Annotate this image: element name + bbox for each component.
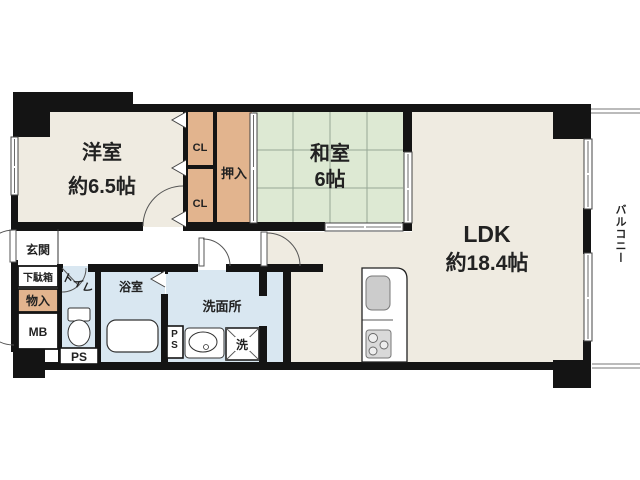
wall-right-mid bbox=[583, 208, 591, 254]
genkan-label: 玄関 bbox=[26, 242, 50, 257]
wall-hall-bottom-c bbox=[226, 264, 323, 272]
wall-tatami-bottom bbox=[250, 222, 325, 231]
closet-upper-fill bbox=[187, 108, 215, 167]
wall-closet-divider bbox=[187, 165, 217, 169]
tatami-room-size: 6帖 bbox=[314, 168, 345, 191]
pipe-space-toilet-label: PS bbox=[71, 350, 87, 364]
ldk-door-leaf bbox=[261, 232, 267, 266]
wall-hall-bottom-b bbox=[88, 264, 198, 272]
meter-box-label: MB bbox=[29, 325, 48, 339]
toilet-tank bbox=[68, 308, 90, 321]
oshiire-label: 押入 bbox=[221, 166, 247, 181]
closet-upper-label: CL bbox=[193, 142, 208, 154]
toilet-bowl bbox=[68, 320, 90, 346]
floorplan-canvas: 洋室 約6.5帖 和室 6帖 LDK 約18.4帖 押入 CL CL 玄関 下駄… bbox=[0, 0, 640, 480]
washstand-basin bbox=[189, 332, 217, 352]
washroom-label: 洗面所 bbox=[202, 299, 241, 314]
wall-top bbox=[50, 104, 557, 112]
balcony-label: バルコニー bbox=[612, 204, 628, 264]
washroom-door-leaf bbox=[199, 238, 204, 266]
ldk-size: 約18.4帖 bbox=[446, 251, 529, 275]
washer-label: 洗 bbox=[236, 337, 248, 352]
pipe-space-washroom-label: PS bbox=[169, 329, 180, 351]
kitchen-sink bbox=[366, 276, 390, 310]
wall-washroom-stub-bottom bbox=[259, 326, 267, 364]
ldk-label: LDK bbox=[463, 221, 511, 247]
bath-label: 浴室 bbox=[119, 279, 143, 294]
wall-left-lower bbox=[11, 260, 18, 352]
storage-label: 物入 bbox=[26, 293, 50, 308]
wall-washroom-stub-top bbox=[259, 270, 267, 296]
wall-pillar-top-right bbox=[553, 104, 591, 139]
western-room-label: 洋室 bbox=[82, 140, 122, 164]
tatami-room-label: 和室 bbox=[310, 141, 350, 165]
wall-washroom-ldk bbox=[283, 264, 291, 368]
closet-lower-label: CL bbox=[193, 198, 208, 210]
shoe-cabinet-label: 下駄箱 bbox=[23, 271, 53, 284]
western-room-size: 約6.5帖 bbox=[68, 174, 136, 198]
floorplan-drawing: 洋室 約6.5帖 和室 6帖 LDK 約18.4帖 押入 CL CL 玄関 下駄… bbox=[0, 0, 640, 480]
wall-pillar-top-left bbox=[13, 92, 50, 137]
bathtub bbox=[107, 320, 158, 352]
wall-tatami-right bbox=[403, 110, 412, 152]
wall-western-room-bottom bbox=[13, 222, 143, 231]
washroom-door-arc bbox=[203, 239, 230, 266]
kitchen-counter bbox=[362, 268, 407, 362]
entrance-door-leaf bbox=[10, 230, 16, 262]
washstand-faucet bbox=[204, 345, 209, 350]
